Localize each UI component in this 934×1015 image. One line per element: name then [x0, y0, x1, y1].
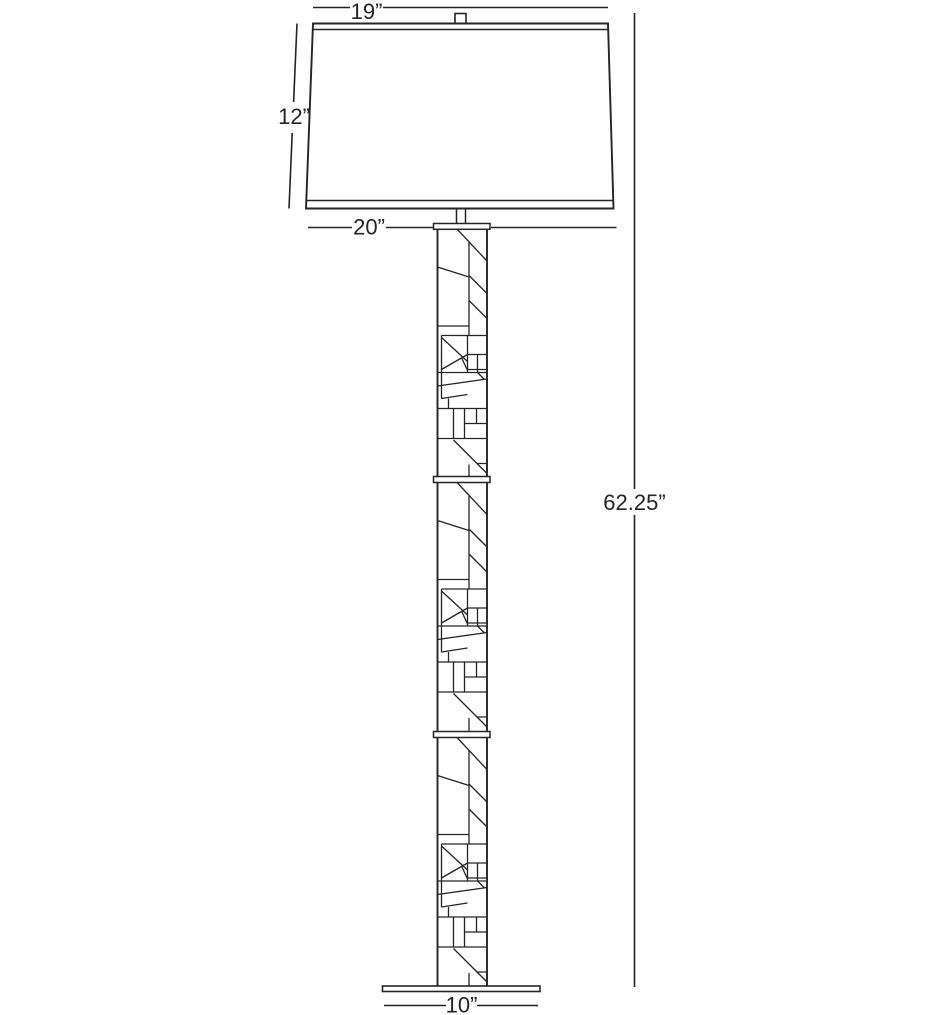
collar-lower [434, 732, 491, 738]
shade-outline [306, 24, 614, 209]
column-edges [438, 229, 488, 987]
column-segment-2 [438, 482, 488, 732]
dim-shade-height: 12” [278, 24, 310, 209]
dim-base-width: 10” [384, 993, 538, 1015]
column-segment-1 [438, 229, 488, 479]
lamp-dimension-diagram: 19” 12” 20” 62.25” 10” [0, 0, 934, 1015]
dim-shade-top-width-label: 19” [351, 0, 383, 24]
collar-upper [434, 477, 491, 483]
floor-lamp-line-drawing: 19” 12” 20” 62.25” 10” [0, 0, 934, 1015]
dim-shade-bottom-width-label: 20” [353, 215, 385, 240]
dim-shade-height-label: 12” [278, 104, 310, 129]
lamp-shade [306, 14, 614, 209]
dim-base-width-label: 10” [446, 993, 478, 1015]
column-mosaic [438, 229, 488, 988]
column-segment-3 [438, 737, 488, 987]
column-cap [434, 224, 491, 230]
dim-overall-height-label: 62.25” [603, 490, 665, 515]
finial [455, 14, 466, 24]
neck [457, 209, 466, 225]
base-plate [383, 986, 541, 992]
